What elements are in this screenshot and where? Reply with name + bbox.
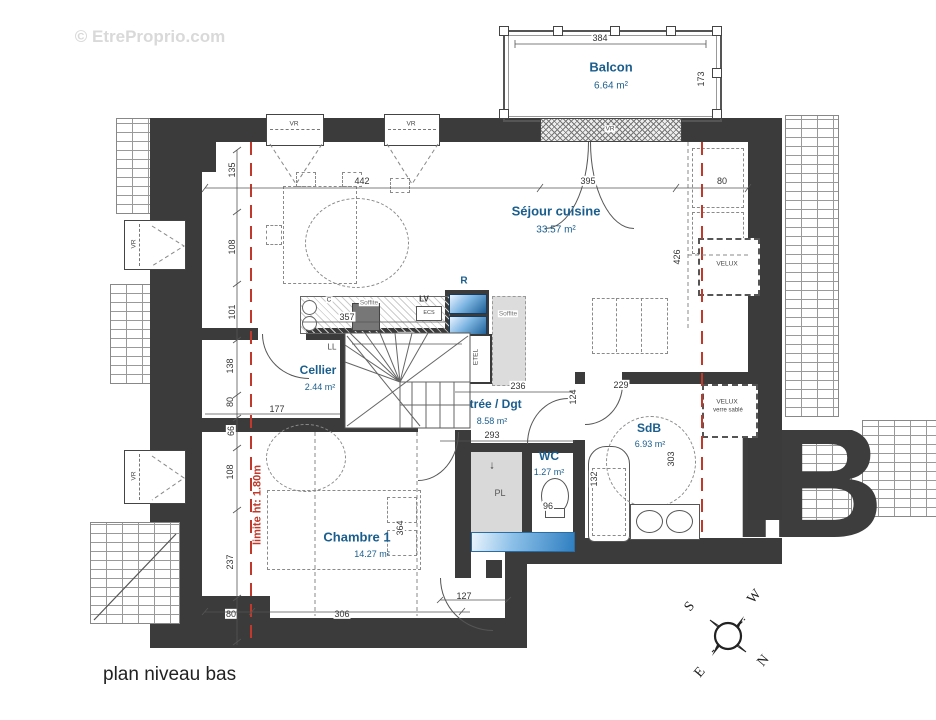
chair: [296, 172, 316, 187]
glazed-strip: [471, 532, 575, 552]
armchair: [266, 424, 346, 492]
dim-left-8: 237: [225, 553, 235, 570]
window-glass-line: [270, 129, 320, 130]
velux-sable-label-2: verre sablé: [713, 408, 743, 415]
door-swing-chambre: [418, 432, 459, 481]
balcony-railing: [503, 30, 722, 122]
compass-west: W: [745, 586, 765, 606]
compass-rose: [710, 616, 746, 656]
soffit-label: Soffite: [359, 299, 379, 306]
round-table: [305, 198, 409, 288]
room-label-entree: Entrée / Dgt: [454, 398, 521, 412]
dim-entree-height: 124: [568, 388, 578, 405]
dim-sdb-width: 229: [612, 380, 629, 390]
window-top-1: [266, 114, 324, 146]
window-top-2: [384, 114, 440, 146]
height-limit-label: limite ht: 1.80m: [252, 465, 265, 545]
closet-pl-label: PL: [494, 488, 505, 498]
height-limit-line-left: [250, 142, 252, 642]
dim-left-2: 108: [227, 238, 237, 255]
window-shutter-label: VR: [405, 120, 416, 127]
wall-segment: [505, 560, 527, 648]
window-glass-line: [139, 224, 140, 266]
kitchen-hob: [352, 303, 380, 331]
railing-post: [553, 26, 563, 36]
sofa-cushion-line: [616, 298, 617, 352]
room-label-sdb: SdB: [637, 422, 661, 436]
window-shutter-label: VR: [288, 120, 299, 127]
dim-wc-width: 96: [542, 501, 554, 511]
railing-post: [712, 26, 722, 36]
technical-closet-label: ETEL: [472, 349, 479, 365]
railing-post: [712, 109, 722, 119]
room-area-cellier: 2.44 m²: [305, 382, 336, 392]
window-shutter-label: VR: [130, 471, 137, 480]
chair: [266, 225, 282, 245]
roof-hatch: [90, 522, 180, 624]
sink: [636, 510, 663, 533]
wall-segment: [573, 440, 585, 543]
window-shutter-label: VR: [604, 125, 615, 132]
railing-post: [610, 26, 620, 36]
dim-balcony-depth: 173: [696, 70, 706, 87]
dim-top-right: 80: [716, 176, 728, 186]
door-leaf: [486, 560, 502, 578]
railing-post: [712, 68, 722, 78]
wall-segment: [748, 118, 782, 520]
dim-sejour-width: 442: [353, 176, 370, 186]
dim-sdb-height: 303: [666, 450, 676, 467]
water-heater-label: ECS: [423, 310, 434, 316]
kitchen-c-label: C: [326, 296, 333, 303]
window-glass-line: [139, 454, 140, 500]
soffit-label: Soffite: [498, 310, 518, 317]
height-limit-line-right: [701, 142, 703, 532]
wall-segment: [202, 138, 216, 172]
wall-segment: [340, 328, 354, 430]
washer-label: LL: [327, 342, 338, 351]
sink: [666, 510, 693, 533]
compass-north: N: [755, 652, 773, 669]
dim-chambre-width: 306: [333, 609, 350, 619]
dim-cellier-width: 177: [268, 404, 285, 414]
wall-segment: [150, 618, 510, 648]
roof-hatch: [116, 118, 154, 214]
sofa: [592, 298, 668, 354]
dim-wc-height: 132: [589, 470, 599, 487]
window-shutter-label: VR: [130, 239, 137, 248]
window-glass-line: [388, 129, 436, 130]
dim-left-5: 80: [225, 396, 235, 408]
site-watermark: © EtreProprio.com: [75, 27, 225, 47]
room-area-sdb: 6.93 m²: [635, 439, 666, 449]
balcony-railing-inner: [508, 35, 717, 117]
room-label-chambre: Chambre 1: [323, 531, 390, 546]
plan-title: plan niveau bas: [103, 664, 236, 686]
wall-segment: [522, 443, 532, 535]
velux-label: VELUX: [716, 260, 737, 267]
dim-sejour-door: 395: [579, 176, 596, 186]
sofa-cushion-line: [641, 298, 642, 352]
dishwasher-label: LV: [419, 294, 429, 303]
compass-east: E: [692, 664, 709, 680]
room-area-wc: 1.27 m²: [534, 467, 565, 477]
dim-bottom-door: 127: [455, 591, 472, 601]
railing-post: [499, 109, 509, 119]
dim-left-7: 108: [225, 463, 235, 480]
dim-left-1: 135: [227, 161, 237, 178]
roof-hatch: [785, 115, 839, 417]
water-heater-box: ECS: [416, 306, 442, 321]
dim-nook-height: 426: [672, 248, 682, 265]
kitchen-sink-bowl: [302, 300, 317, 315]
wall-segment: [575, 372, 585, 384]
dim-bottom-left: 80: [225, 609, 237, 619]
dim-left-3: 101: [227, 303, 237, 320]
room-area-entree: 8.58 m²: [477, 416, 508, 426]
door-swing-wc: [527, 398, 568, 444]
railing-post: [666, 26, 676, 36]
dim-left-4: 138: [225, 357, 235, 374]
railing-post: [499, 26, 509, 36]
wall-segment: [455, 430, 471, 578]
velux-sable-label-1: VELUX: [716, 398, 737, 405]
dim-stairs-height: 90: [395, 392, 405, 404]
dim-stairs-width: 218: [397, 332, 414, 342]
room-area-balcon: 6.64 m²: [594, 80, 628, 92]
dim-chambre-height: 364: [395, 519, 405, 536]
dim-kitchen: 357: [338, 312, 355, 322]
room-label-balcon: Balcon: [589, 61, 632, 76]
compass-south: S: [682, 599, 699, 615]
fridge-label: R: [460, 275, 467, 287]
room-label-wc: WC: [539, 450, 559, 464]
room-area-sejour: 33.57 m²: [536, 224, 575, 236]
chair: [390, 178, 410, 193]
wall-segment: [622, 372, 748, 384]
fridge-unit: [449, 316, 487, 336]
room-label-cellier: Cellier: [300, 364, 337, 378]
dim-left-6: 66: [226, 425, 236, 437]
down-arrow: ↓: [489, 460, 495, 473]
dim-entree-bottom: 293: [483, 430, 500, 440]
dim-entree-width: 236: [509, 381, 526, 391]
room-area-chambre: 14.27 m²: [354, 549, 390, 559]
room-label-sejour: Séjour cuisine: [512, 205, 601, 220]
floor-plan: © EtreProprio.com IB Balcon 6.64 m²: [0, 0, 936, 720]
dim-balcony-width: 384: [591, 33, 608, 43]
fridge-unit: [449, 294, 487, 314]
kitchen-sink-bowl: [302, 316, 317, 331]
